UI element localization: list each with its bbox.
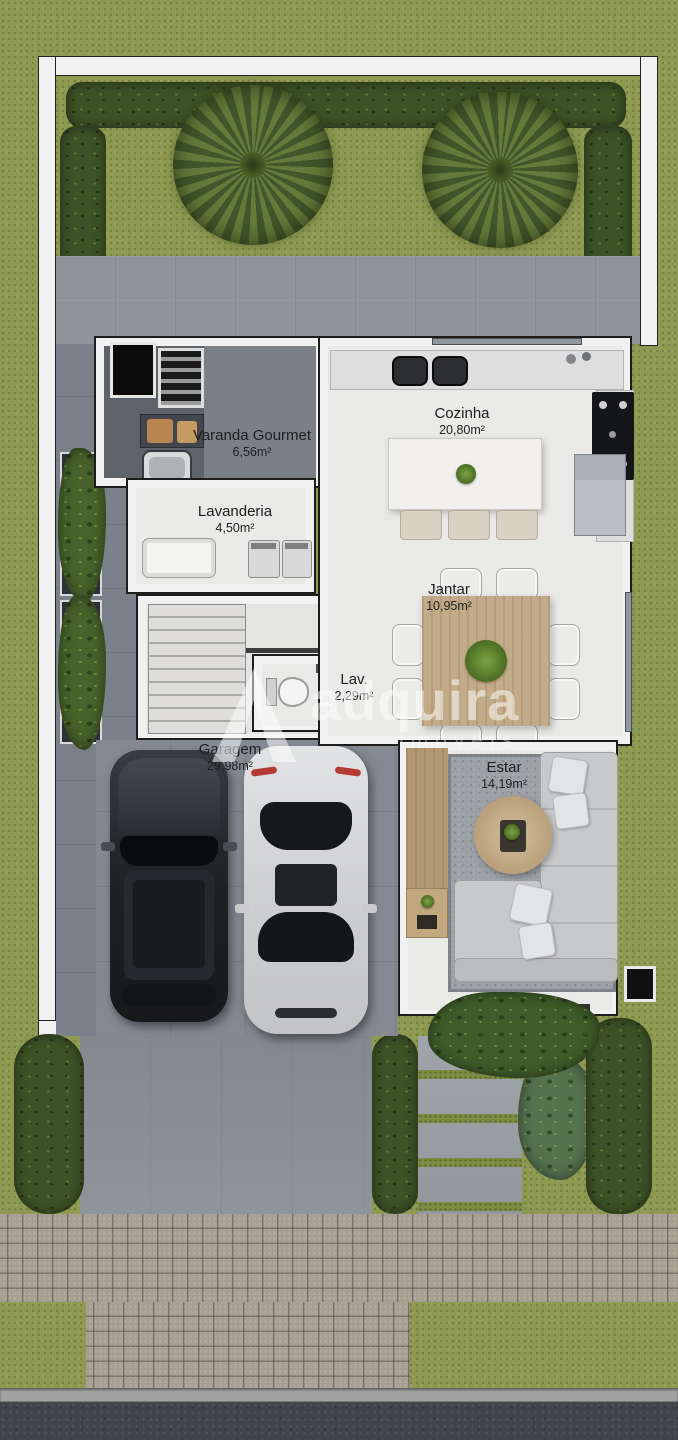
washer-control-strip <box>251 543 276 549</box>
sedan-sunroof <box>275 864 337 906</box>
room-name: Jantar <box>426 582 472 599</box>
suv-mirror-right <box>223 842 237 851</box>
planter-shrubs-2 <box>58 596 106 750</box>
room-area: 10,95m² <box>426 599 472 613</box>
burner-center <box>609 431 616 438</box>
room-lavanderia <box>126 478 316 594</box>
fridge <box>574 454 626 536</box>
car-sedan-white <box>244 746 368 1034</box>
front-hedge-center <box>372 1034 418 1214</box>
dining-chair <box>548 678 580 720</box>
counter-fixture-2 <box>582 352 591 361</box>
driveway <box>80 1036 372 1214</box>
cabinet-plant <box>421 895 434 908</box>
sofa-pillow <box>547 755 588 796</box>
barbecue-grill <box>158 348 204 408</box>
front-hedge-left <box>14 1034 84 1214</box>
room-label-jantar: Jantar 10,95m² <box>426 582 472 613</box>
suv-sunroof <box>133 880 205 968</box>
kitchen-counter-top <box>330 350 624 390</box>
sidewalk <box>0 1214 678 1302</box>
cabinet-decor <box>417 915 437 929</box>
room-name: Lav. <box>335 672 374 689</box>
corner-planter-niche <box>624 966 656 1002</box>
street-asphalt <box>0 1402 678 1440</box>
lot-wall-left <box>38 56 56 1036</box>
varanda-sink-basin <box>149 457 185 479</box>
room-label-varanda-gourmet: Varanda Gourmet 6,56m² <box>193 428 311 459</box>
burner <box>619 401 627 409</box>
car-suv-dark <box>110 750 228 1022</box>
sedan-taillight-right <box>335 766 362 777</box>
laundry-tank <box>142 538 216 578</box>
corridor-planter-2 <box>60 600 102 744</box>
driveway-apron <box>86 1302 410 1388</box>
washer-control-strip <box>285 543 308 549</box>
island-stool <box>400 510 442 540</box>
dining-window-right <box>625 592 632 732</box>
kitchen-sink-2 <box>432 356 468 386</box>
suv-mirror-left <box>101 842 115 851</box>
suv-rear-window <box>122 984 216 1006</box>
kitchen-sink-1 <box>392 356 428 386</box>
sedan-windshield <box>258 912 354 962</box>
room-area: 2,29m² <box>335 689 374 703</box>
suv-roof-glass <box>124 870 214 980</box>
sedan-mirror-right <box>363 904 377 913</box>
counter-fixture-1 <box>566 354 576 364</box>
sofa-pillow <box>552 792 590 830</box>
path-grass-joint <box>418 1114 522 1123</box>
floor-plan-scene: Varanda Gourmet 6,56m² Cozinha 20,80m² L… <box>0 0 678 1440</box>
room-label-lavabo: Lav. 2,29m² <box>335 672 374 703</box>
room-label-estar: Estar 14,19m² <box>481 760 527 791</box>
toilet-bowl <box>278 677 309 707</box>
room-area: 14,19m² <box>481 777 527 791</box>
room-name: Garagem <box>199 742 262 759</box>
room-label-lavanderia: Lavanderia 4,50m² <box>198 504 272 535</box>
sofa-pillow <box>518 922 557 961</box>
island-stool <box>448 510 490 540</box>
street-curb <box>0 1388 678 1402</box>
burner <box>599 401 607 409</box>
backyard-patio <box>56 256 640 344</box>
sedan-grille <box>275 1008 337 1018</box>
washing-machine-2 <box>282 540 312 578</box>
room-area: 4,50m² <box>198 521 272 535</box>
dining-centerpiece-plant <box>465 640 507 682</box>
path-grass-joint <box>418 1158 522 1167</box>
room-name: Lavanderia <box>198 504 272 521</box>
sedan-mirror-left <box>235 904 249 913</box>
room-label-cozinha: Cozinha 20,80m² <box>434 406 489 437</box>
toilet-tank <box>266 678 277 706</box>
island-stool <box>496 510 538 540</box>
chimney-box <box>110 342 156 398</box>
lot-wall-right <box>640 56 658 346</box>
dining-chair <box>392 624 424 666</box>
sofa-pillow <box>508 882 553 927</box>
island-plant <box>456 464 476 484</box>
sedan-rear-glass <box>260 802 352 850</box>
kitchen-window-top <box>432 338 582 345</box>
washing-machine-1 <box>248 540 280 578</box>
coffee-table-plant <box>504 824 520 840</box>
staircase <box>148 604 246 734</box>
dining-chair <box>548 624 580 666</box>
palm-tree-right <box>422 92 578 248</box>
palm-tree-left <box>173 85 333 245</box>
lot-wall-top <box>38 56 658 76</box>
sofa-base <box>454 958 618 982</box>
cutting-board <box>147 419 173 443</box>
room-name: Estar <box>481 760 527 777</box>
coffee-table <box>474 796 552 874</box>
entry-garden-plants <box>428 992 600 1078</box>
room-varanda-gourmet <box>94 336 326 488</box>
side-cabinet <box>406 888 448 938</box>
room-label-garagem: Garagem 29,98m² <box>199 742 262 773</box>
room-area: 6,56m² <box>193 445 311 459</box>
room-area: 20,80m² <box>434 423 489 437</box>
dining-chair <box>392 678 424 720</box>
room-area: 29,98m² <box>199 759 262 773</box>
suv-windshield <box>120 836 218 866</box>
room-name: Cozinha <box>434 406 489 423</box>
room-name: Varanda Gourmet <box>193 428 311 445</box>
path-grass-joint <box>418 1202 522 1211</box>
front-hedge-right <box>586 1018 652 1214</box>
